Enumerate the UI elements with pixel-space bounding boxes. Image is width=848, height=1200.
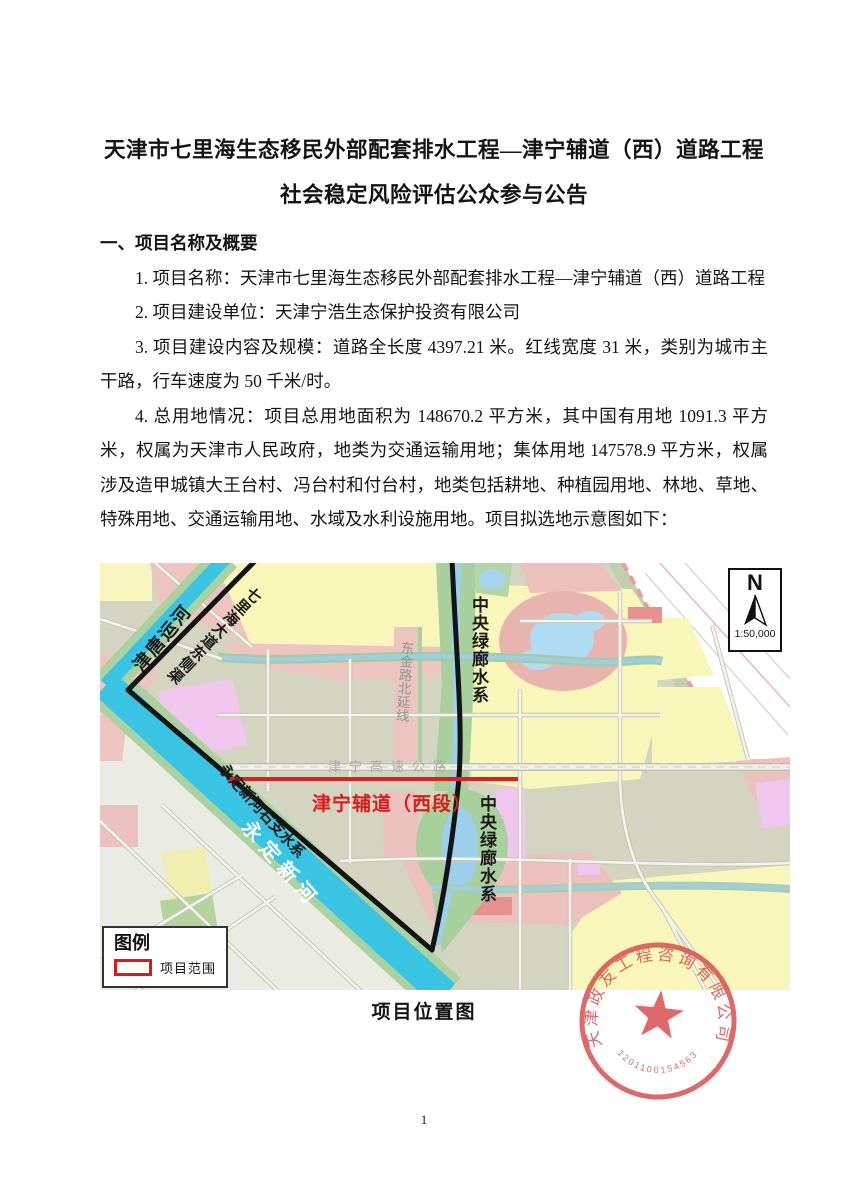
document-page: 天津市七里海生态移民外部配套排水工程—津宁辅道（西）道路工程 社会稳定风险评估公…: [0, 0, 848, 1200]
seal-number-text: 1201100154563: [614, 1040, 701, 1079]
paragraph-owner: 2. 项目建设单位：天津宁浩生态保护投资有限公司: [100, 295, 768, 330]
legend-box: 图例 项目范围: [102, 926, 228, 988]
paragraph-land-use: 4. 总用地情况：项目总用地面积为 148670.2 平方米，其中国有用地 10…: [100, 399, 768, 537]
paragraph-scale: 3. 项目建设内容及规模：道路全长度 4397.21 米。红线宽度 31 米，类…: [100, 330, 768, 399]
scale-label: 1:50,000: [735, 628, 776, 640]
north-arrow-icon: [742, 594, 768, 627]
company-seal: 天津政友工程咨询有限公司 1201100154563: [565, 928, 752, 1115]
north-label: N: [747, 571, 763, 594]
label-project-road: 津宁辅道（西段）: [312, 789, 472, 816]
label-central-green-corridor-south: 中央绿廊水系: [474, 795, 499, 903]
legend-title: 图例: [114, 933, 226, 953]
label-central-green-corridor-north: 中央绿廊水系: [466, 596, 491, 704]
paragraph-project-name: 1. 项目名称：天津市七里海生态移民外部配套排水工程—津宁辅道（西）道路工程: [100, 261, 768, 296]
legend-item-label: 项目范围: [160, 958, 216, 977]
zone-yellow: [100, 563, 152, 601]
label-jinning-expressway: 津宁高速公路: [328, 756, 454, 775]
document-title: 天津市七里海生态移民外部配套排水工程—津宁辅道（西）道路工程 社会稳定风险评估公…: [100, 128, 768, 218]
zone-yellow-small: [162, 847, 212, 901]
project-extent-swatch: [114, 959, 152, 976]
project-location-map: 津唐运河 七里海大道东侧渠 中央绿廊水系 中央绿廊水系 东金路北延线 永定新河右…: [100, 563, 790, 990]
corridor-water: [479, 569, 505, 589]
star-icon: [632, 988, 686, 1040]
document-content: 天津市七里海生态移民外部配套排水工程—津宁辅道（西）道路工程 社会稳定风险评估公…: [0, 0, 848, 537]
title-line-1: 天津市七里海生态移民外部配套排水工程—津宁辅道（西）道路工程: [100, 128, 768, 173]
legend-row: 项目范围: [114, 958, 226, 977]
page-number: 1: [0, 1112, 848, 1128]
north-arrow-box: N 1:50,000: [728, 568, 782, 652]
section-heading: 一、项目名称及概要: [100, 226, 768, 261]
title-line-2: 社会稳定风险评估公众参与公告: [100, 173, 768, 218]
